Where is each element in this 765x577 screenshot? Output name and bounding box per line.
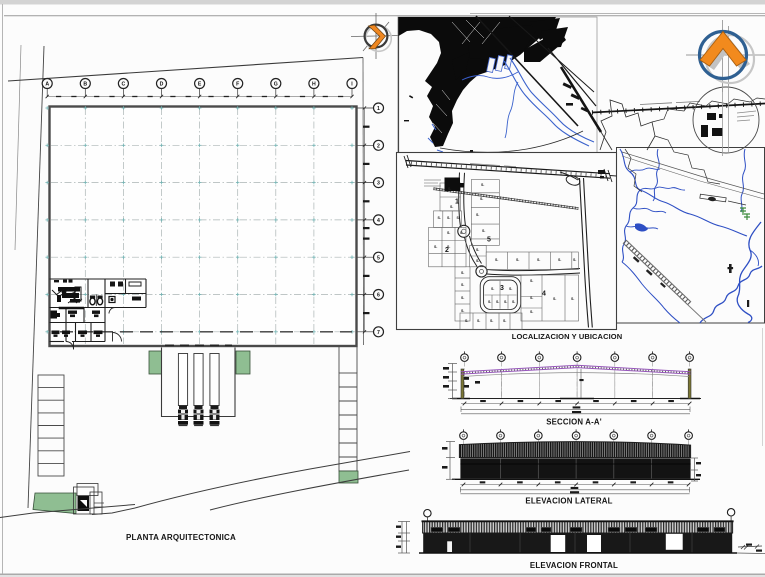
svg-text:S.: S. bbox=[434, 245, 437, 249]
svg-text:S.: S. bbox=[496, 300, 499, 304]
svg-text:F: F bbox=[236, 82, 239, 88]
svg-text:S.: S. bbox=[476, 213, 479, 217]
svg-text:S.: S. bbox=[447, 231, 450, 235]
svg-text:1: 1 bbox=[455, 199, 459, 206]
svg-text:S.: S. bbox=[447, 216, 450, 220]
svg-text:S.: S. bbox=[571, 297, 574, 301]
svg-text:S.: S. bbox=[460, 231, 463, 235]
svg-text:S.: S. bbox=[553, 297, 556, 301]
svg-text:S.: S. bbox=[461, 296, 464, 300]
svg-text:A: A bbox=[45, 82, 49, 88]
svg-text:S.: S. bbox=[450, 205, 453, 209]
svg-text:S.: S. bbox=[504, 300, 507, 304]
svg-text:S.: S. bbox=[461, 271, 464, 275]
svg-text:S.: S. bbox=[481, 183, 484, 187]
svg-text:S.: S. bbox=[490, 319, 493, 323]
svg-text:S.: S. bbox=[448, 187, 451, 191]
svg-text:S.: S. bbox=[530, 296, 533, 300]
svg-text:S.: S. bbox=[482, 229, 485, 233]
svg-text:1: 1 bbox=[377, 106, 380, 112]
svg-text:ELEVACION LATERAL: ELEVACION LATERAL bbox=[525, 497, 612, 506]
svg-text:3: 3 bbox=[377, 181, 380, 187]
svg-text:ELEVACION FRONTAL: ELEVACION FRONTAL bbox=[530, 561, 618, 570]
svg-text:S.: S. bbox=[530, 310, 533, 314]
svg-text:5: 5 bbox=[377, 255, 380, 261]
svg-text:S.: S. bbox=[488, 300, 491, 304]
svg-text:S.: S. bbox=[457, 216, 460, 220]
svg-text:S.: S. bbox=[495, 258, 498, 262]
svg-text:S.: S. bbox=[558, 258, 561, 262]
svg-text:3: 3 bbox=[500, 285, 504, 292]
svg-text:S.: S. bbox=[476, 259, 479, 263]
svg-text:S.: S. bbox=[512, 300, 515, 304]
svg-text:PLANTA ARQUITECTONICA: PLANTA ARQUITECTONICA bbox=[126, 533, 236, 542]
svg-text:S.: S. bbox=[509, 287, 512, 291]
svg-text:G: G bbox=[274, 82, 278, 88]
svg-text:5: 5 bbox=[487, 237, 491, 244]
svg-text:S.: S. bbox=[477, 319, 480, 323]
svg-text:S.: S. bbox=[461, 309, 464, 313]
svg-text:6: 6 bbox=[377, 293, 380, 299]
svg-text:D: D bbox=[160, 82, 164, 88]
svg-text:LOCALIZACION Y UBICACION: LOCALIZACION Y UBICACION bbox=[512, 332, 622, 341]
svg-text:S.: S. bbox=[516, 258, 519, 262]
svg-text:B: B bbox=[83, 82, 87, 88]
svg-text:H: H bbox=[312, 82, 316, 88]
svg-text:2: 2 bbox=[377, 143, 380, 149]
svg-text:C: C bbox=[122, 82, 126, 88]
svg-text:SECCION A-A': SECCION A-A' bbox=[546, 418, 602, 427]
svg-text:S.: S. bbox=[530, 279, 533, 283]
svg-text:S.: S. bbox=[461, 283, 464, 287]
svg-text:S.: S. bbox=[476, 248, 479, 252]
svg-text:E: E bbox=[198, 82, 202, 88]
svg-text:S.: S. bbox=[480, 197, 483, 201]
svg-text:S.: S. bbox=[491, 287, 494, 291]
svg-text:S.: S. bbox=[438, 216, 441, 220]
svg-text:S.: S. bbox=[465, 319, 468, 323]
svg-text:7: 7 bbox=[377, 330, 380, 336]
svg-text:S.: S. bbox=[503, 319, 506, 323]
svg-text:S.: S. bbox=[447, 245, 450, 249]
svg-text:4: 4 bbox=[377, 218, 380, 224]
svg-text:4: 4 bbox=[542, 291, 546, 298]
svg-text:S.: S. bbox=[573, 258, 576, 262]
svg-text:S.: S. bbox=[537, 258, 540, 262]
